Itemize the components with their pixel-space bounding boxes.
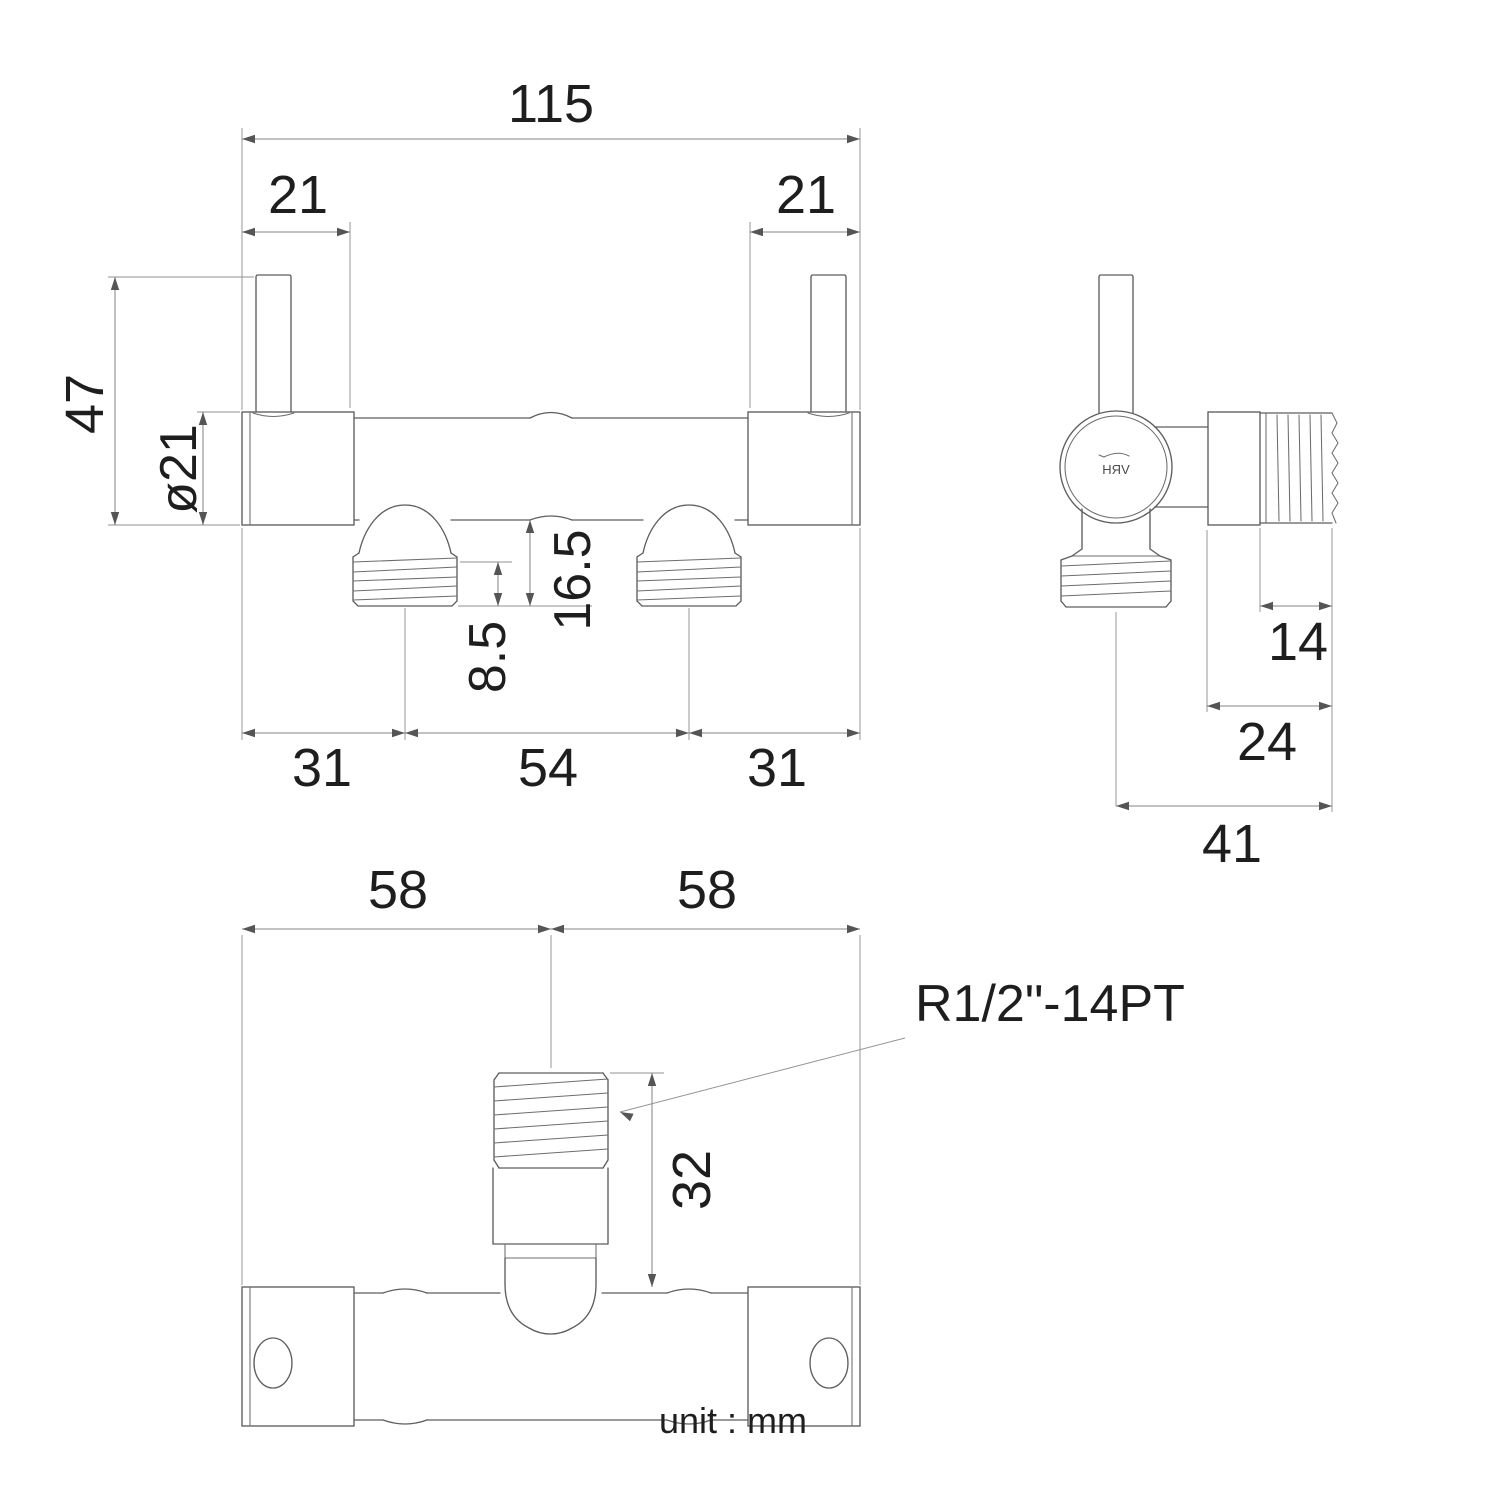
brand-logo: VRH <box>1099 453 1130 477</box>
side-view: VRH <box>1060 275 1338 874</box>
bottom-left-hole <box>254 1338 292 1388</box>
bottom-right-hole <box>810 1338 848 1388</box>
unit-note: unit : mm <box>659 1400 807 1441</box>
front-right-outlet-thread <box>637 505 741 606</box>
side-body <box>1208 412 1260 525</box>
dim-left-offset: 31 <box>292 738 352 798</box>
dim-thread-length-front: 8.5 <box>459 621 517 693</box>
dim-outlet-drop: 16.5 <box>544 529 602 630</box>
dim-total-depth: 41 <box>1202 814 1262 874</box>
dim-height: 47 <box>55 374 115 434</box>
front-right-handle <box>808 275 849 417</box>
dim-outlet-spacing: 54 <box>518 738 578 798</box>
dim-cap-left: 21 <box>268 165 328 225</box>
bottom-left-cap <box>242 1287 354 1426</box>
dim-total-width: 115 <box>508 74 594 134</box>
thread-spec-label: R1/2"-14PT <box>915 975 1185 1033</box>
bottom-inlet-thread <box>493 1073 608 1334</box>
side-lower-thread <box>1061 509 1171 607</box>
dim-left-half: 58 <box>368 860 428 920</box>
drawing-sheet: 115 21 21 47 ø21 16.5 <box>0 0 1500 1500</box>
dim-thread-length-side: 14 <box>1268 612 1328 672</box>
front-right-cap <box>748 412 860 525</box>
side-handle <box>1099 275 1133 413</box>
dim-right-half: 58 <box>677 860 737 920</box>
front-tube <box>354 413 748 521</box>
side-right-thread <box>1260 413 1338 523</box>
front-view: 115 21 21 47 ø21 16.5 <box>55 74 860 798</box>
front-left-outlet-thread <box>353 505 457 606</box>
dim-body-depth: 24 <box>1237 712 1297 772</box>
dim-right-offset: 31 <box>747 738 807 798</box>
front-left-cap <box>242 412 354 525</box>
dim-body-diameter: ø21 <box>150 424 208 514</box>
bottom-view: 58 58 32 R1/2"-14PT <box>242 860 1185 1426</box>
dim-inlet-height: 32 <box>662 1150 722 1210</box>
svg-text:VRH: VRH <box>1102 462 1129 477</box>
dim-cap-right: 21 <box>776 165 836 225</box>
front-left-handle <box>253 275 294 417</box>
technical-drawing: 115 21 21 47 ø21 16.5 <box>0 0 1500 1500</box>
